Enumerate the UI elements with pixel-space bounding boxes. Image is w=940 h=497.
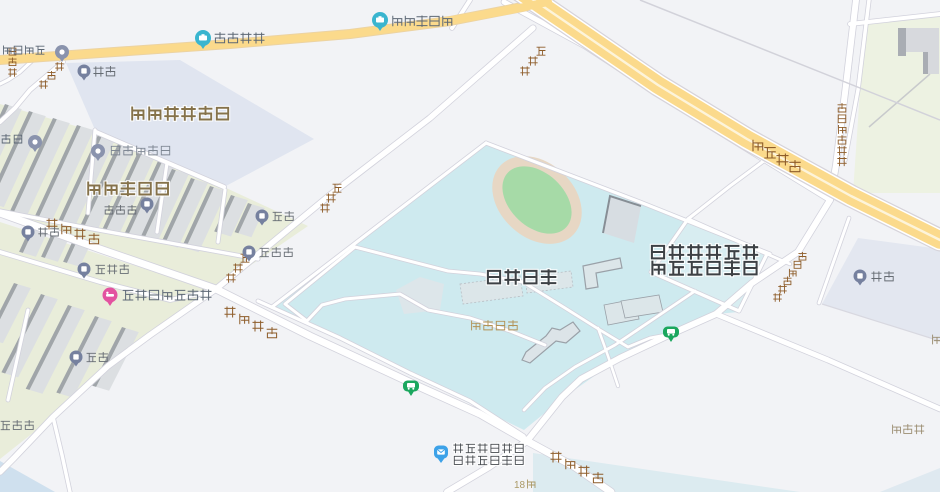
svg-text:18: 18 [514,480,526,491]
